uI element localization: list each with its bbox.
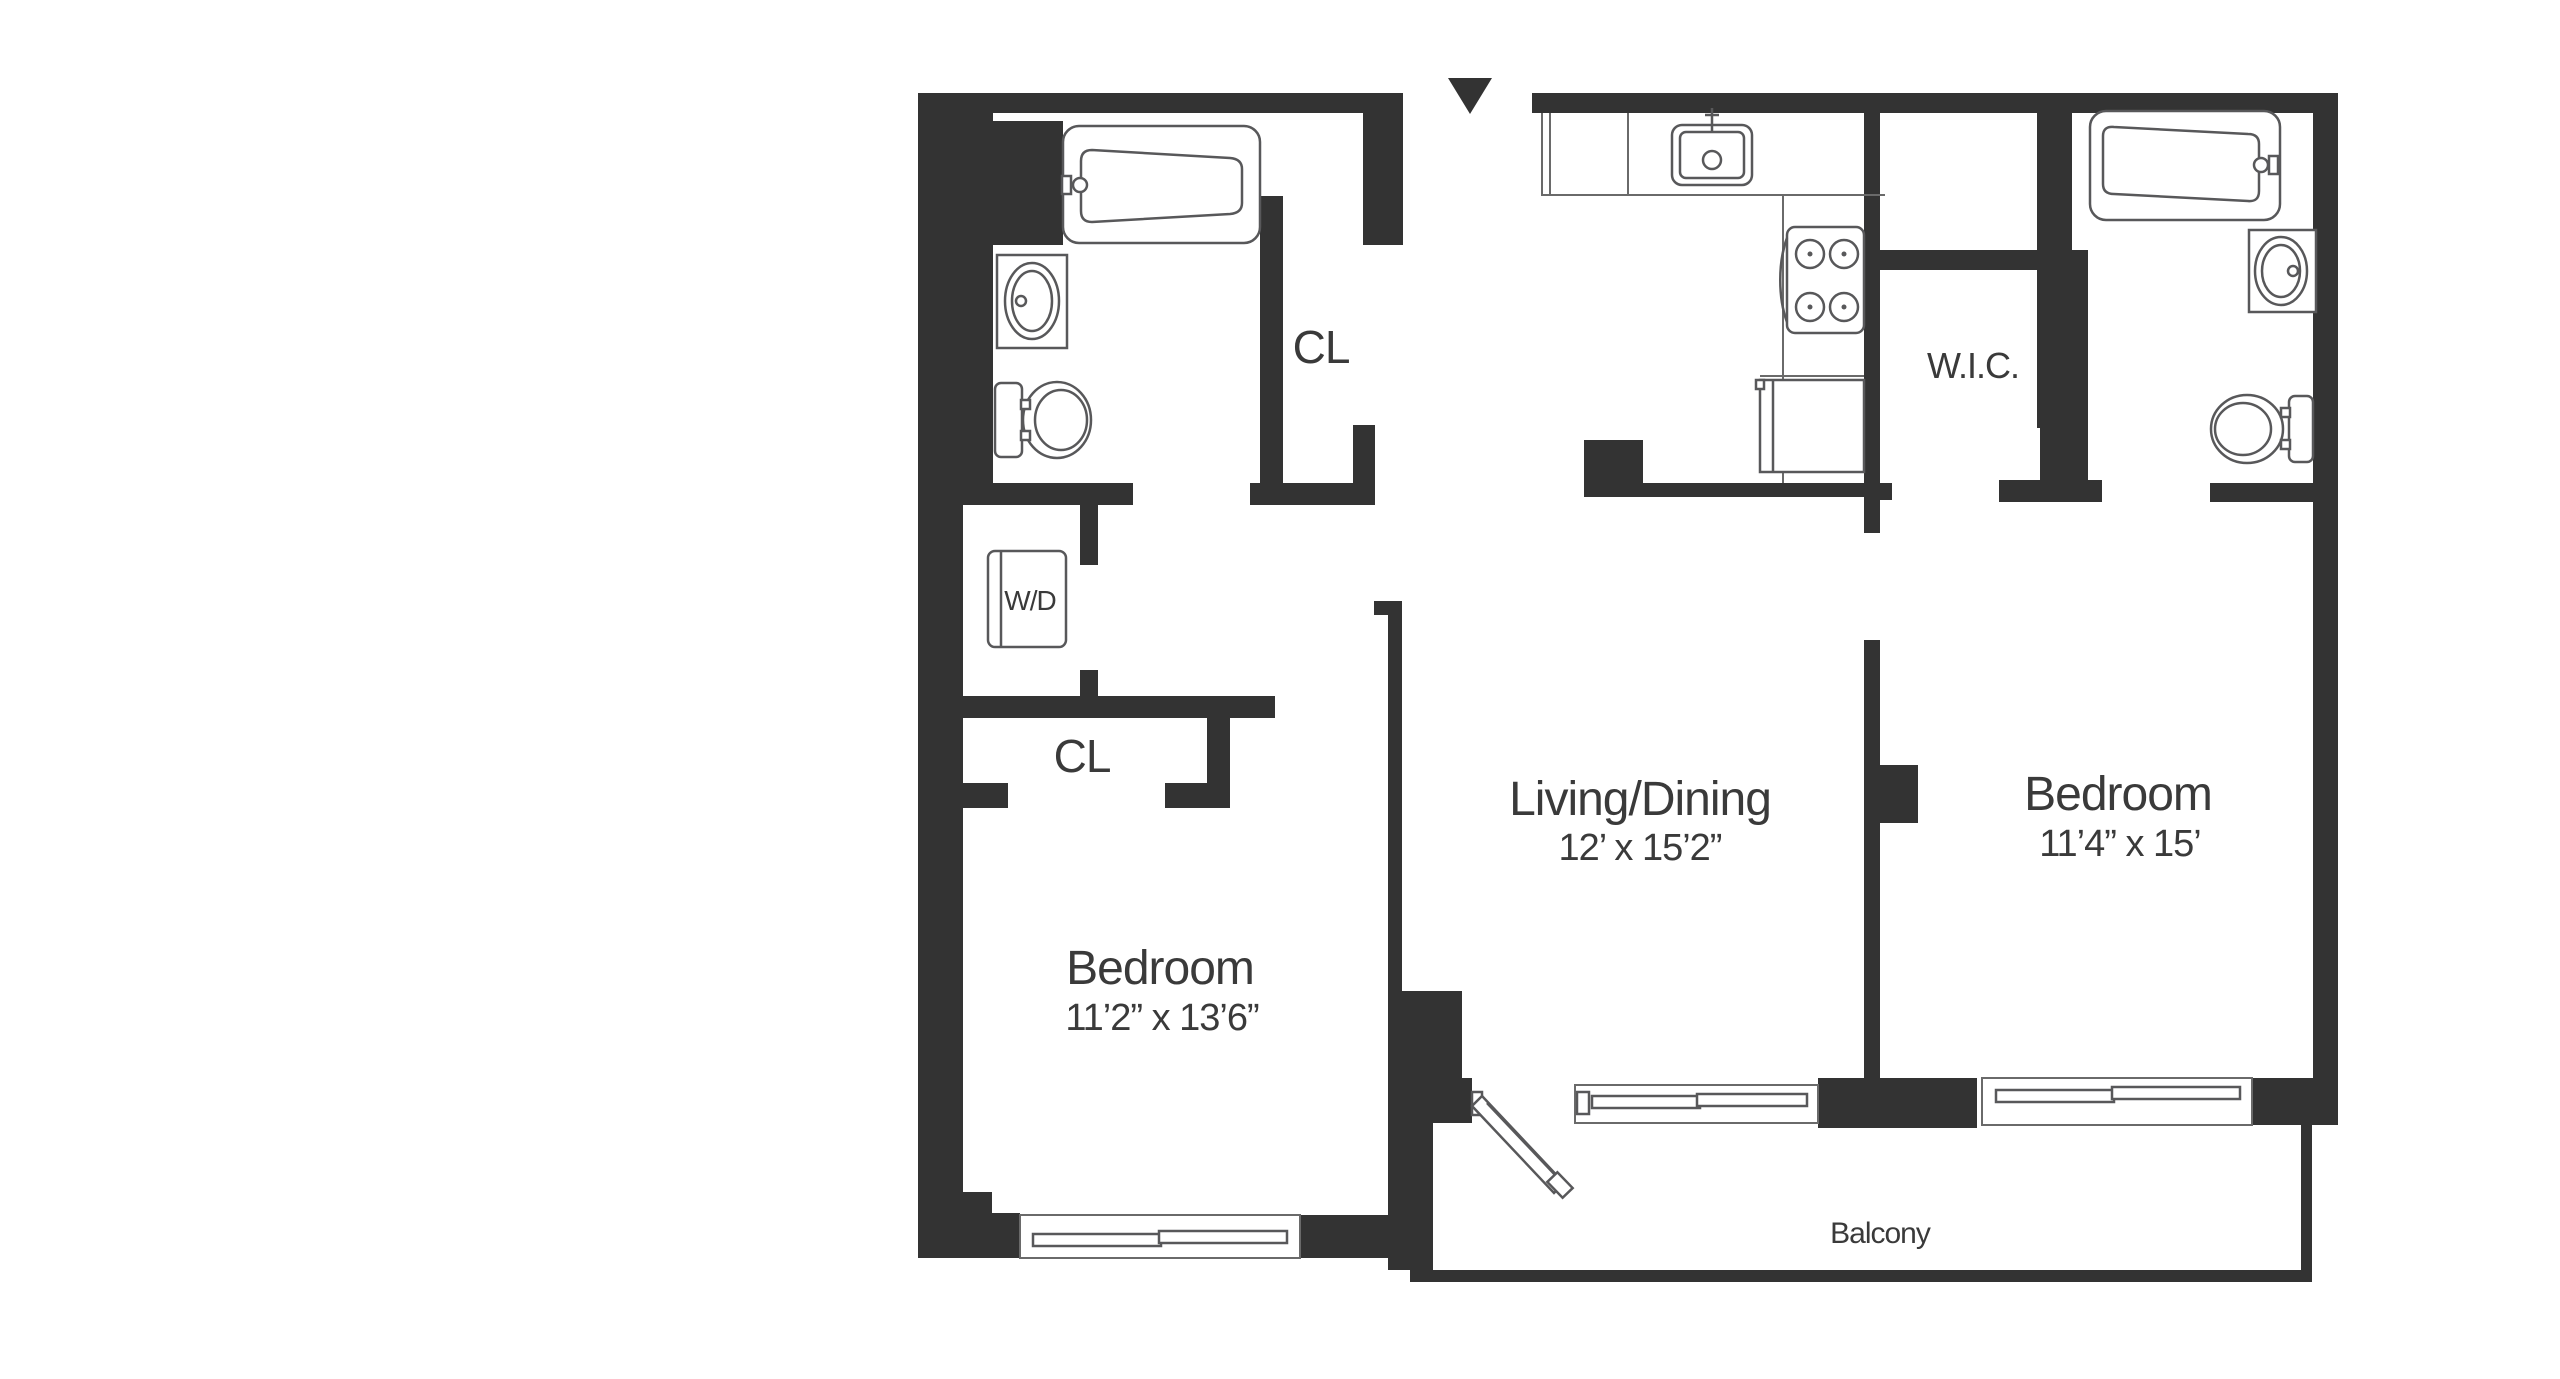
bathroom-right-fixtures xyxy=(2090,111,2316,463)
closet-bath-label: CL xyxy=(1293,321,1350,373)
kitchen-sink-icon xyxy=(1672,108,1752,185)
wall-cl1-right-low xyxy=(1353,425,1375,483)
bedroom-left-label: Bedroom xyxy=(1066,942,1254,995)
windows xyxy=(1020,1078,2252,1258)
wall-south-big-pier xyxy=(1818,1078,1977,1128)
window-bedroom-right xyxy=(1982,1078,2252,1125)
wall-left-pier-step1 xyxy=(918,1192,992,1216)
wall-balcony-right xyxy=(2301,1123,2312,1270)
closet-hall-label: CL xyxy=(1054,730,1111,782)
wall-wic-band xyxy=(1880,250,2037,270)
wall-wd-right-top xyxy=(1080,505,1098,565)
bedroom-left-dims: 11’2” x 13’6” xyxy=(1065,997,1259,1039)
bathtub-icon xyxy=(1062,126,1260,243)
wall-wic-right xyxy=(2037,113,2072,428)
wall-bath2-left-layer xyxy=(2072,250,2088,428)
entry-arrow-icon xyxy=(1448,78,1492,114)
toilet-icon xyxy=(2211,395,2313,463)
kitchen-fixtures xyxy=(1542,108,1885,483)
wall-bed2-pier xyxy=(1880,765,1918,823)
floor-plan-page: Bedroom 11’2” x 13’6” Living/Dining 12’ … xyxy=(0,0,2560,1379)
wall-cl1-right-top xyxy=(1363,113,1403,245)
bedroom-right-dims: 11’4” x 15’ xyxy=(2039,823,2201,865)
washer-dryer-label: W/D xyxy=(1004,585,1055,616)
living-dining-label: Living/Dining xyxy=(1509,773,1771,826)
wall-bath1-bottom-right xyxy=(1250,483,1375,505)
wall-kitchen-right xyxy=(1864,113,1880,533)
wall-kitchen-bottom xyxy=(1643,483,1880,497)
sink-icon xyxy=(2249,230,2316,312)
toilet-icon xyxy=(995,382,1091,458)
wall-kitchen-tab xyxy=(1880,483,1892,500)
balcony-door xyxy=(1472,1092,1573,1198)
wall-cl1-left xyxy=(1260,196,1283,483)
wall-left-outer xyxy=(918,93,963,1192)
floor-plan: Bedroom 11’2” x 13’6” Living/Dining 12’ … xyxy=(0,0,2560,1379)
wall-cl2-bottom-right xyxy=(1165,783,1208,808)
sink-icon xyxy=(997,255,1067,348)
wall-balcony-bottom xyxy=(1410,1270,2312,1282)
refrigerator-icon xyxy=(1756,376,1864,472)
wall-bed2-window-right-pier xyxy=(2252,1078,2313,1125)
living-dining-dims: 12’ x 15’2” xyxy=(1559,827,1722,869)
wall-tub1-left-block xyxy=(993,121,1063,245)
wall-left-bath-layer xyxy=(963,93,993,505)
window-bedroom-left xyxy=(1020,1215,1300,1258)
wall-wic-base xyxy=(1999,480,2102,502)
wall-bath2-bottom xyxy=(2210,483,2338,502)
balcony-label: Balcony xyxy=(1830,1217,1931,1250)
wic-label: W.I.C. xyxy=(1927,345,2019,386)
wall-bed2-left xyxy=(1864,640,1880,1078)
wall-kitchen-block xyxy=(1584,440,1643,497)
wall-window1-right-pier xyxy=(1300,1215,1433,1258)
stove-icon xyxy=(1780,227,1864,333)
wall-bath1-bottom-left xyxy=(993,483,1133,505)
wall-wd-right-bottom xyxy=(1080,670,1098,698)
wall-cl2-bottom-left xyxy=(963,783,1008,808)
wall-living-left xyxy=(1388,601,1402,1078)
wall-pier-upper xyxy=(1402,991,1462,1078)
window-living xyxy=(1575,1085,1818,1123)
bathtub-icon xyxy=(2090,111,2280,220)
wall-cl2-right xyxy=(1207,696,1230,808)
bedroom-right-label: Bedroom xyxy=(2024,768,2212,821)
wall-left-pier-step2 xyxy=(918,1213,1020,1258)
